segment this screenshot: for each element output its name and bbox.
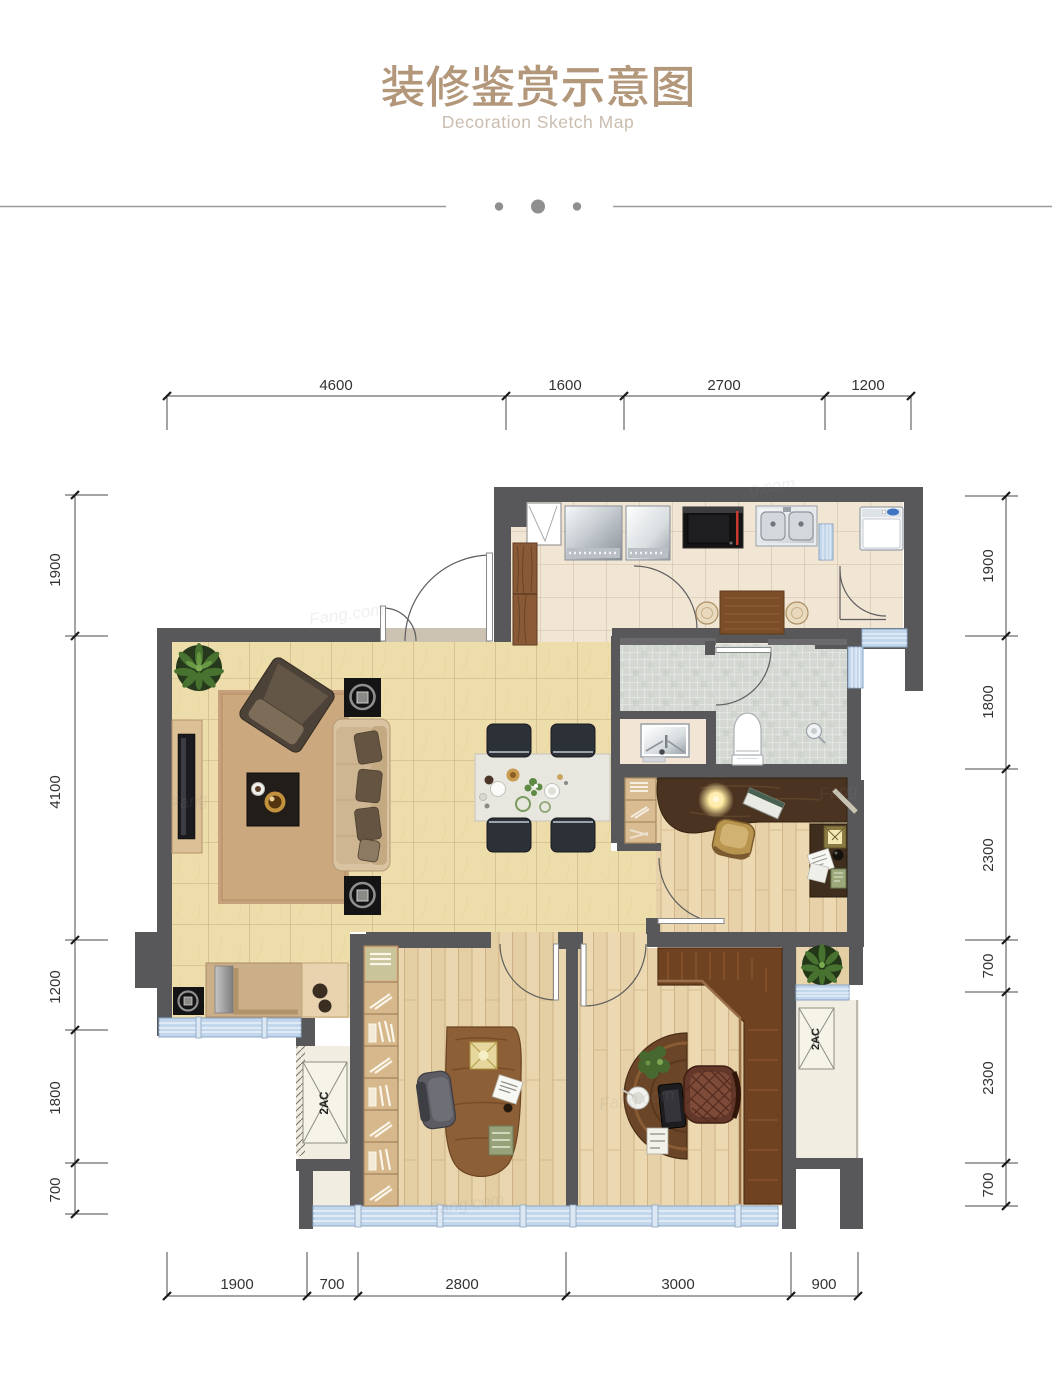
svg-text:4600: 4600 [319, 377, 352, 394]
svg-text:4100: 4100 [47, 775, 64, 808]
svg-text:900: 900 [811, 1276, 836, 1293]
svg-text:2AC: 2AC [810, 1028, 822, 1050]
svg-text:700: 700 [980, 1172, 997, 1197]
svg-text:1900: 1900 [220, 1276, 253, 1293]
svg-text:1600: 1600 [548, 377, 581, 394]
svg-text:700: 700 [319, 1276, 344, 1293]
svg-text:Decoration Sketch Map: Decoration Sketch Map [442, 112, 634, 132]
svg-text:1900: 1900 [980, 549, 997, 582]
svg-text:1800: 1800 [980, 685, 997, 718]
svg-text:1200: 1200 [47, 970, 64, 1003]
svg-text:1800: 1800 [47, 1081, 64, 1114]
svg-text:700: 700 [980, 953, 997, 978]
svg-text:2800: 2800 [445, 1276, 478, 1293]
svg-text:2700: 2700 [707, 377, 740, 394]
svg-text:2300: 2300 [980, 838, 997, 871]
svg-text:2300: 2300 [980, 1061, 997, 1094]
svg-text:700: 700 [47, 1177, 64, 1202]
svg-text:2AC: 2AC [319, 1091, 331, 1114]
svg-text:1200: 1200 [851, 377, 884, 394]
svg-text:1900: 1900 [47, 553, 64, 586]
svg-text:3000: 3000 [661, 1276, 694, 1293]
